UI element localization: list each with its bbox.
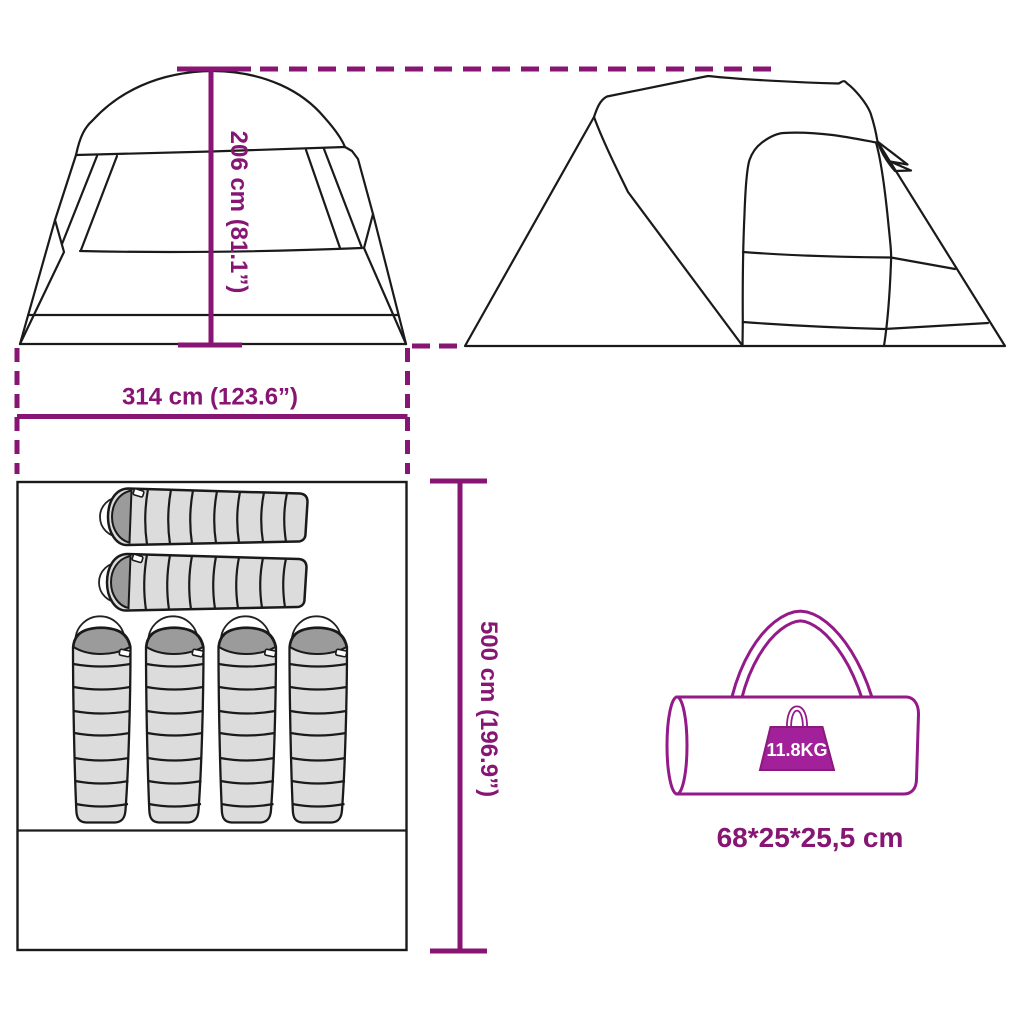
svg-text:500 cm (196.9”): 500 cm (196.9”) <box>475 621 502 797</box>
svg-text:11.8KG: 11.8KG <box>766 740 827 760</box>
svg-text:206 cm (81.1”): 206 cm (81.1”) <box>225 131 252 294</box>
svg-text:68*25*25,5 cm: 68*25*25,5 cm <box>717 822 904 853</box>
svg-text:314 cm (123.6”): 314 cm (123.6”) <box>122 384 298 411</box>
